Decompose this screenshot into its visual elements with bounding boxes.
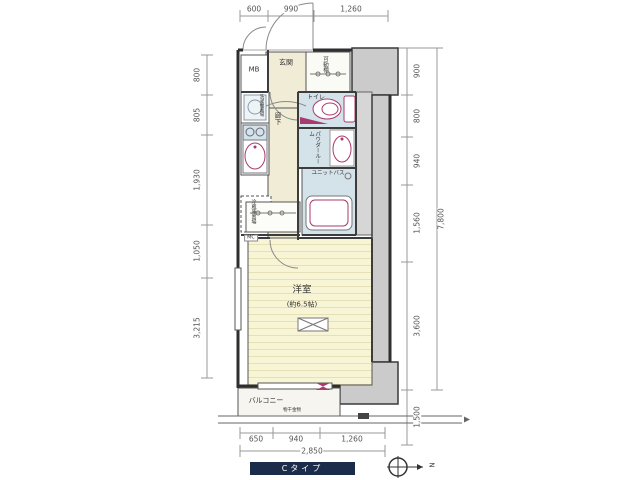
counter-icon (298, 318, 328, 331)
dim-bottom-1: 650 (248, 435, 264, 443)
dim-left-1: 800 (193, 67, 201, 83)
room-label-powder-room: パウダールーム (308, 131, 320, 167)
dim-top-3: 1,260 (339, 5, 362, 13)
window-left (235, 268, 241, 330)
dim-bottom-3: 1,260 (340, 435, 363, 443)
kitchen-sink-icon (243, 140, 267, 173)
room-label-unit-bath: ユニットバス (311, 171, 344, 177)
room-label-toilet: トイレ (307, 95, 325, 101)
stove-icon (243, 125, 267, 140)
dim-bottom-2: 940 (288, 435, 304, 443)
balcony-edge (218, 416, 462, 423)
room-label-movable-shelf: 可動棚 (322, 56, 328, 90)
floorplan-drawing (0, 0, 640, 480)
room-label-mb: MB (249, 67, 260, 74)
room-label-washer-space: 洗濯機置場 (258, 94, 263, 122)
dim-left-3: 1,930 (193, 168, 201, 191)
floorplan-page: 600 990 1,260 800 805 1,930 1,050 3,215 … (0, 0, 640, 480)
room-label-fridge-space: 冷蔵庫置場 (250, 199, 256, 230)
dim-right-total: 7,800 (437, 207, 445, 230)
dim-top-2: 990 (283, 5, 299, 13)
room-label-main-room-size: (約6.5帖) (287, 302, 318, 309)
room-label-hallway: 廊下 (273, 112, 280, 138)
dim-right-6: 1,500 (413, 405, 421, 428)
room-label-balcony: バルコニー (249, 398, 284, 405)
dim-right-1: 900 (413, 63, 421, 79)
dim-right-3: 940 (413, 153, 421, 169)
label-laundry-hardware: 物干金物 (283, 409, 301, 414)
dim-right-5: 3,600 (413, 314, 421, 337)
room-label-main-room: 洋室 (292, 285, 311, 295)
slab-arrow (464, 417, 470, 423)
dim-left-5: 3,215 (193, 316, 201, 339)
dim-top-1: 600 (246, 5, 262, 13)
dim-right-2: 800 (413, 108, 421, 124)
type-bar: Cタイプ (250, 462, 355, 475)
dim-left-4: 1,050 (193, 239, 201, 262)
dim-left-2: 805 (193, 107, 201, 123)
room-label-closet: MC (244, 235, 258, 242)
compass-icon (387, 456, 423, 478)
dim-bottom-total: 2,850 (300, 447, 323, 455)
compass-north-letter: N (428, 462, 436, 467)
type-bar-label: Cタイプ (282, 465, 324, 473)
washbasin-icon (330, 130, 354, 166)
hatch-marker (358, 413, 369, 419)
room-label-entrance: 玄関 (279, 60, 293, 67)
dim-right-4: 1,560 (413, 211, 421, 234)
